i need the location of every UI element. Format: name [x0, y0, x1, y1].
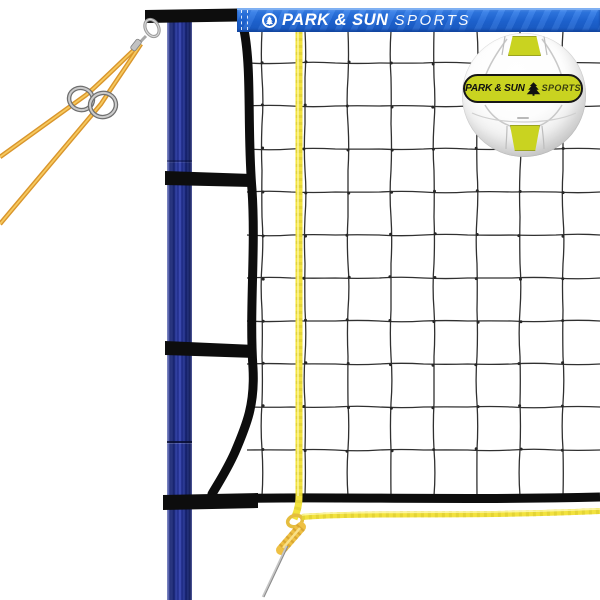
net-knot [520, 448, 523, 451]
pole-strap-middle [165, 341, 256, 358]
net-knot [518, 362, 521, 365]
net-knot [348, 61, 351, 64]
net-knot [517, 234, 520, 237]
net-top-banner: PARK & SUN SPORTS [237, 8, 600, 32]
net-knot [561, 361, 564, 364]
net-knot [476, 233, 479, 236]
banner-brand-text: PARK & SUN [282, 12, 388, 29]
net-knot [302, 148, 305, 151]
rigging-hardware [0, 17, 162, 224]
net-knot [477, 405, 480, 408]
net-knot [304, 104, 307, 107]
ball-size-mark [517, 117, 529, 119]
ball-bottom-panel [510, 125, 540, 151]
net-knot [305, 60, 308, 63]
net-knot [347, 362, 350, 365]
net-knot [261, 61, 264, 64]
ground-stake-pin [263, 546, 287, 597]
net-knot [388, 319, 391, 322]
volleyball: PARK & SUN SPORTS [462, 33, 586, 157]
rope-ferrule [130, 38, 142, 51]
net-knot [519, 278, 522, 281]
net-knot [262, 404, 265, 407]
net-knot [432, 320, 435, 323]
net-top-strap [145, 9, 238, 24]
net-knot [431, 406, 434, 409]
net-knot [346, 105, 349, 108]
net-knot [391, 106, 394, 109]
pole-strap-lower [163, 493, 258, 510]
net-knot [518, 404, 521, 407]
pole-strap-upper [165, 171, 252, 187]
net-knot [302, 405, 305, 408]
product-photo: PARK & SUN SPORTS PARK & SUN SPORTS [0, 0, 600, 600]
net-knot [477, 321, 480, 324]
net-knot [475, 277, 478, 280]
net-knot [304, 235, 307, 238]
banner-logo-icon [262, 13, 277, 28]
net-knot [434, 232, 437, 235]
net-knot [432, 448, 435, 451]
net-knot [262, 278, 265, 281]
net-knot [433, 276, 436, 279]
banner-sports-text: SPORTS [394, 13, 470, 28]
net-knot [388, 275, 391, 278]
net-cord [390, 31, 392, 496]
net-knot [431, 106, 434, 109]
net-side-band [212, 30, 253, 494]
net-knot [432, 148, 435, 151]
net-knot [346, 318, 349, 321]
net-cord [261, 31, 263, 496]
guy-rope-lower [0, 44, 141, 224]
ball-logo-panel: PARK & SUN SPORTS [463, 74, 583, 103]
net-knot [261, 191, 264, 194]
net-knot [519, 320, 522, 323]
net-knot [261, 147, 264, 150]
net-knot [390, 62, 393, 65]
ball-sports-text: SPORTS [542, 84, 581, 93]
net-knot [347, 192, 350, 195]
net-knot [302, 277, 305, 280]
net-knot [262, 320, 265, 323]
ball-tree-icon [526, 82, 541, 96]
net-knot [262, 362, 265, 365]
ball-top-panel [508, 36, 541, 56]
ground-stake-pin-shade [264, 546, 288, 597]
net-knot [304, 361, 307, 364]
banner-brand-row: PARK & SUN SPORTS [262, 12, 471, 29]
net-cord [304, 31, 306, 496]
net-knot [348, 276, 351, 279]
net-knot [562, 235, 565, 238]
net-knot [347, 149, 350, 152]
net-knot [561, 319, 564, 322]
net-cord [433, 31, 435, 496]
net-knot [261, 103, 264, 106]
net-knot [389, 233, 392, 236]
net-knot [561, 277, 564, 280]
net-knot [391, 449, 394, 452]
net-knot [304, 192, 307, 195]
net-knot [432, 63, 435, 66]
net-knot [347, 406, 350, 409]
net-knot [390, 407, 393, 410]
net-knot [391, 149, 394, 152]
net-knot [561, 449, 564, 452]
net-knot [474, 363, 477, 366]
net-knot [562, 191, 565, 194]
net-knot [433, 190, 436, 193]
net-cord [347, 31, 349, 496]
net-knot [346, 450, 349, 453]
net-knot [345, 234, 348, 237]
net-knot [304, 449, 307, 452]
net-knot [561, 405, 564, 408]
net-knot [476, 189, 479, 192]
net-knot [475, 447, 478, 450]
net-knot [389, 363, 392, 366]
net-knot [262, 235, 265, 238]
ball-brand-text: PARK & SUN [465, 84, 525, 94]
net-knot [304, 319, 307, 322]
net-knot [261, 448, 264, 451]
net-knot [390, 191, 393, 194]
net-knot [432, 364, 435, 367]
net-knot [519, 190, 522, 193]
